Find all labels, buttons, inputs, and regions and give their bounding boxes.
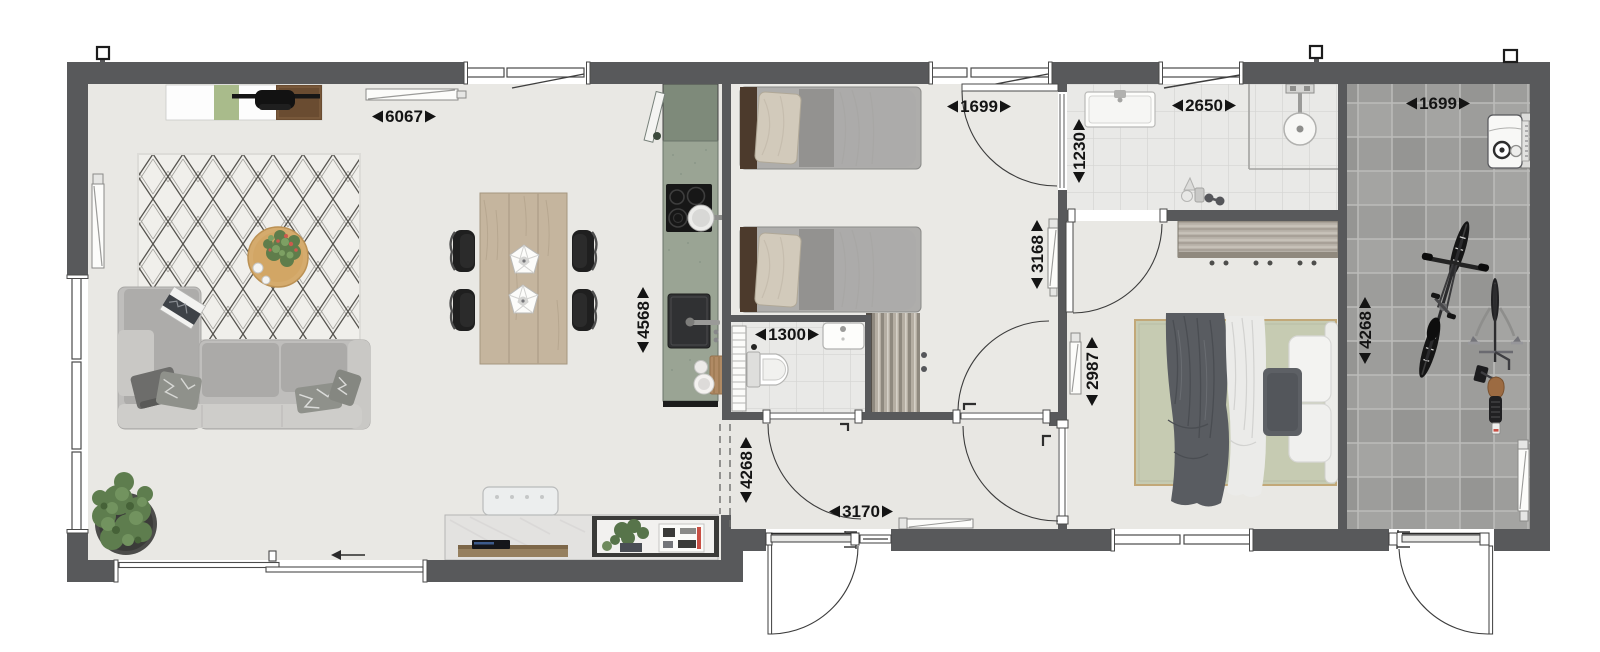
svg-text:6067: 6067 [385,107,423,126]
svg-text:1699: 1699 [1419,94,1457,113]
svg-text:3168: 3168 [1028,235,1047,273]
svg-text:3170: 3170 [842,502,880,521]
svg-text:4268: 4268 [737,451,756,489]
svg-text:1699: 1699 [960,97,998,116]
svg-text:4268: 4268 [1356,311,1375,349]
svg-text:1300: 1300 [768,325,806,344]
svg-text:4568: 4568 [634,301,653,339]
svg-text:2987: 2987 [1083,352,1102,390]
svg-text:2650: 2650 [1185,96,1223,115]
svg-text:1230: 1230 [1070,132,1089,170]
